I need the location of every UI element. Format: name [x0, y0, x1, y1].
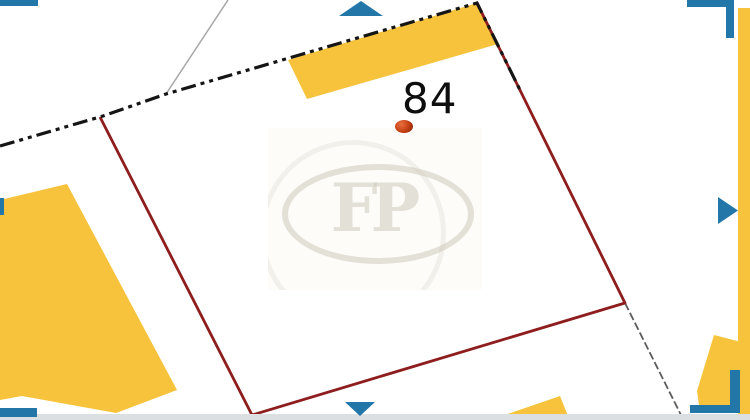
building-footprint-north — [288, 3, 498, 99]
boundary-path-line — [625, 303, 683, 419]
cadastre-map-canvas[interactable]: FP 84 — [0, 0, 750, 420]
pan-down-icon[interactable] — [345, 402, 375, 416]
frame-corner-top-right — [687, 0, 734, 38]
building-footprint-east-edge — [738, 8, 750, 414]
frame-corner-top-left — [0, 0, 38, 6]
frame-corner-bottom-left — [0, 408, 37, 417]
parcel-marker-dot — [395, 120, 413, 133]
pan-up-icon[interactable] — [339, 1, 383, 16]
footer-strip — [0, 414, 750, 420]
pan-left-icon[interactable] — [0, 198, 4, 215]
map-layer — [0, 0, 750, 420]
building-footprint-south — [502, 396, 568, 416]
parcel-number-label: 84 — [402, 78, 457, 120]
pan-right-icon[interactable] — [718, 197, 738, 224]
